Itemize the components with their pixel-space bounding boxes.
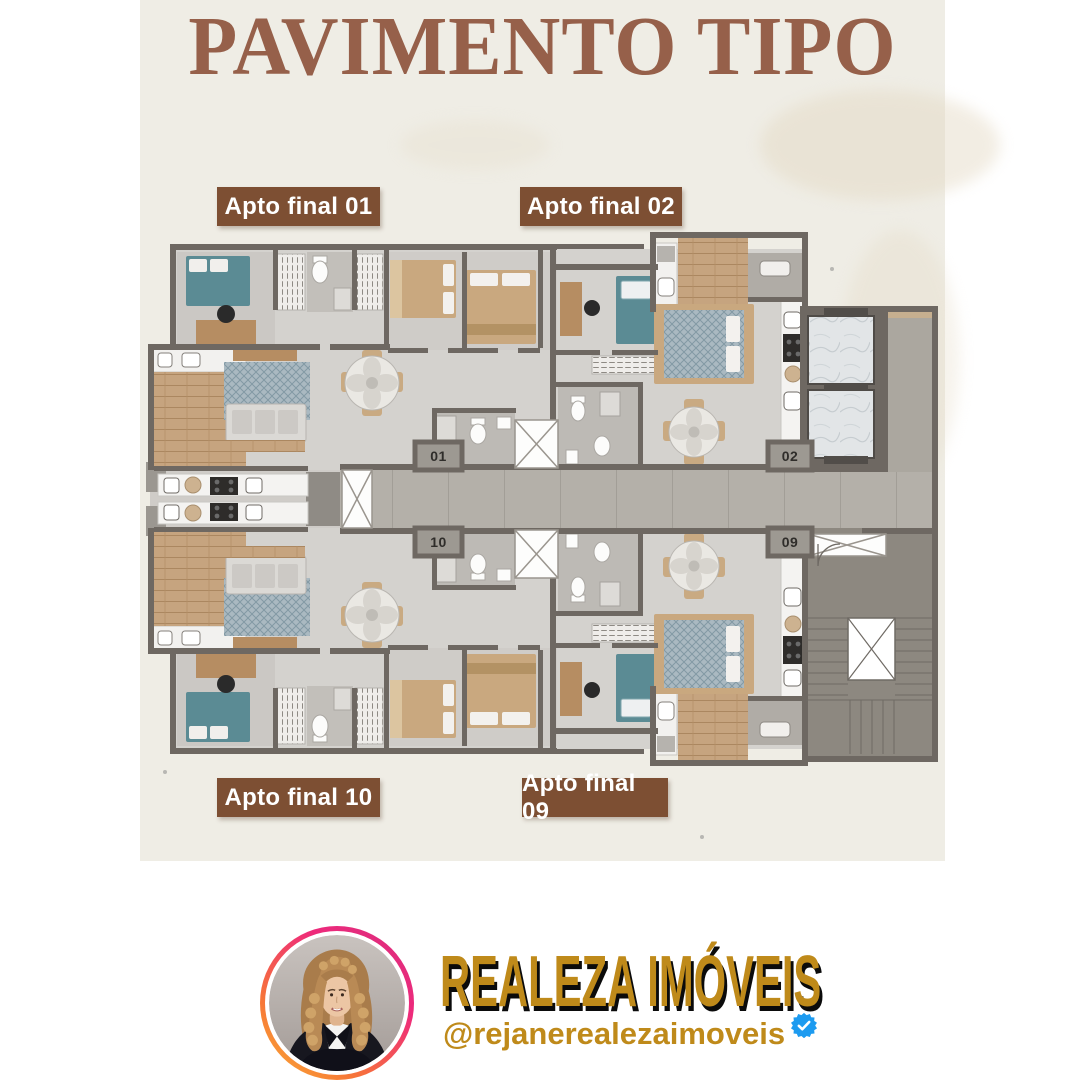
brand-name-text: REALEZA IMÓVEIS xyxy=(440,939,821,1023)
label-text: Apto final 10 xyxy=(225,784,373,812)
unit-number-02: 02 xyxy=(768,443,812,469)
floor-plan-rendering xyxy=(0,0,1080,1080)
portrait-illustration xyxy=(269,935,405,1071)
unit-number-09: 09 xyxy=(768,529,812,555)
label-apto-final-10: Apto final 10 xyxy=(217,778,380,817)
realtor-portrait-photo xyxy=(269,935,405,1071)
instagram-handle: @rejanerealezaimoveis xyxy=(443,1016,785,1052)
label-text: Apto final 01 xyxy=(225,193,373,221)
label-apto-final-01: Apto final 01 xyxy=(217,187,380,226)
unit-number-01: 01 xyxy=(415,443,462,469)
label-text: Apto final 02 xyxy=(527,193,675,221)
avatar-inner-ring xyxy=(265,931,409,1075)
poster-page: PAVIMENTO TIPO xyxy=(0,0,1080,1080)
instagram-handle-row: @rejanerealezaimoveis xyxy=(443,1016,817,1052)
label-apto-final-09: Apto final 09 xyxy=(522,778,668,817)
label-text: Apto final 09 xyxy=(522,770,668,826)
verified-badge-icon xyxy=(791,1012,817,1038)
brand-name: REALEZA IMÓVEIS xyxy=(440,946,820,1016)
unit-number-10: 10 xyxy=(415,529,462,555)
label-apto-final-02: Apto final 02 xyxy=(520,187,682,226)
realtor-avatar xyxy=(260,926,414,1080)
